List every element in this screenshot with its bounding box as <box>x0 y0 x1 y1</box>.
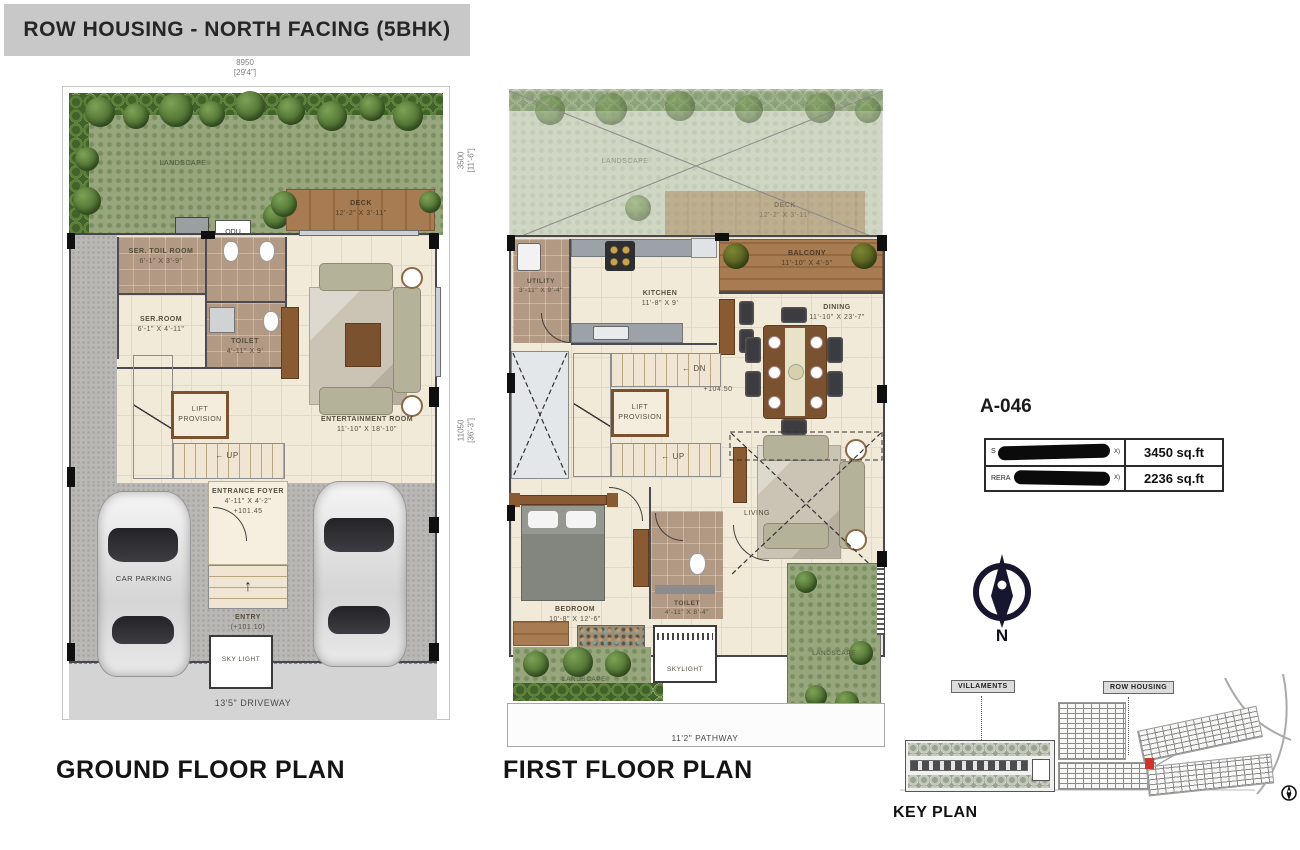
ff-up-label: ← UP <box>643 451 703 462</box>
ff-toilet-label: TOILET 4'-11" X 8'-4" <box>655 599 719 617</box>
pebble-strip <box>577 625 645 649</box>
leader-line <box>1128 697 1129 755</box>
unit-number-text: A-046 <box>980 396 1032 417</box>
car-icon <box>313 481 407 667</box>
gf-car-parking-label: CAR PARKING <box>104 574 184 585</box>
tv-unit <box>281 307 299 379</box>
wall <box>205 237 207 369</box>
room-label: BALCONY <box>757 249 857 259</box>
area-value: 2236 sq.ft <box>1144 471 1204 486</box>
arrow-left-icon: ← <box>215 451 226 460</box>
area-label-cell: S X) <box>986 440 1124 465</box>
room-dim: 4'-11" X 9' <box>209 347 281 357</box>
chair <box>781 307 807 323</box>
key-plan: VILLAMENTS ROW HOUSING <box>895 672 1295 808</box>
chair <box>739 301 754 325</box>
gf-foyer-label: ENTRANCE FOYER 4'-11" X 4'-2" +101.45 <box>210 487 286 516</box>
wall <box>117 293 205 295</box>
chair <box>745 337 761 363</box>
redaction-mark <box>998 444 1110 461</box>
washer-icon <box>517 243 541 271</box>
bed-mattress <box>521 505 605 601</box>
dining-table <box>763 325 827 419</box>
dimension-right-1: 3500 [11'-6"] <box>457 125 478 195</box>
coffee-table <box>345 323 381 367</box>
room-label: TOILET <box>655 599 719 608</box>
arrow-left-icon: ← <box>661 452 672 461</box>
ff-pathway-label: 11'2" PATHWAY <box>635 733 775 745</box>
up-label: UP <box>673 452 685 461</box>
bed-icon <box>519 495 607 505</box>
column <box>429 387 439 407</box>
room-dim: 11'-10" X 4'-5" <box>757 259 857 269</box>
pathway-label: 11'2" PATHWAY <box>672 733 739 743</box>
wall <box>719 291 883 294</box>
dresser <box>633 529 649 587</box>
redacted-label-prefix: RERA <box>991 475 1010 482</box>
room-label: LANDSCAPE <box>812 650 856 657</box>
leader-line <box>981 696 982 742</box>
dim-mm: 11050 <box>457 395 467 465</box>
plate-icon <box>810 336 823 349</box>
vanity-counter <box>655 585 715 594</box>
keyplan-label-text: VILLAMENTS <box>958 683 1008 690</box>
gf-entertainment-label: ENTERTAINMENT ROOM 11'-10" X 18'-10" <box>311 415 423 435</box>
tree-icon <box>359 95 385 121</box>
column <box>507 235 515 251</box>
ff-living-label: LIVING <box>731 509 783 519</box>
ff-plan-title: FIRST FLOOR PLAN <box>503 756 753 785</box>
room-label: ENTRANCE FOYER <box>210 487 286 497</box>
area-value-cell: 3450 sq.ft <box>1124 440 1222 465</box>
hob-icon <box>605 241 635 271</box>
keyplan-label-row-housing: ROW HOUSING <box>1103 681 1174 694</box>
arrow-up-icon: ↑ <box>244 578 252 596</box>
ff-deck-label: DECK 12'-2" X 3'-11" <box>735 201 835 221</box>
keyplan-highlight-unit <box>1145 758 1154 769</box>
wall <box>205 301 287 303</box>
side-table <box>401 395 423 417</box>
column <box>507 505 515 521</box>
tree-icon <box>563 647 593 677</box>
level-label: +101.45 <box>210 507 286 517</box>
keyplan-units-cluster <box>1058 702 1126 760</box>
void-cross-lines <box>511 351 569 479</box>
ff-landscape-right-label: LANDSCAPE <box>793 649 875 658</box>
gf-lift: LIFT PROVISION <box>171 391 229 439</box>
column <box>877 385 887 403</box>
car-windshield <box>324 518 394 552</box>
room-label: SER. TOIL ROOM <box>119 247 203 257</box>
plate-icon <box>768 366 781 379</box>
ff-utility-label: UTILITY 3'-11" X 9'-4" <box>509 277 573 295</box>
pillow-icon <box>566 511 596 528</box>
tree-icon <box>85 97 115 127</box>
tree-icon <box>123 103 149 129</box>
unit-number: A-046 <box>980 396 1032 418</box>
sink-icon <box>593 326 629 340</box>
tree-icon <box>277 97 305 125</box>
keyplan-clubhouse <box>1032 759 1050 781</box>
up-label: UP <box>227 451 239 460</box>
tree-icon <box>159 93 193 127</box>
keyplan-villaments-block <box>905 740 1055 792</box>
area-label-cell: RERA X) <box>986 467 1124 490</box>
plan-title-text: FIRST FLOOR PLAN <box>503 756 753 784</box>
redaction-mark <box>1014 470 1110 486</box>
toilet-wc-icon <box>689 553 706 575</box>
keyplan-title: KEY PLAN <box>893 804 978 822</box>
area-table: S X) 3450 sq.ft RERA X) 2236 sq.ft <box>984 438 1224 492</box>
north-label: N <box>988 626 1016 646</box>
column <box>877 235 887 251</box>
tree-icon <box>271 191 297 217</box>
plate-icon <box>768 336 781 349</box>
chair <box>827 371 843 397</box>
keyplan-compass-icon <box>1280 784 1298 802</box>
keyplan-label-text: ROW HOUSING <box>1110 684 1167 691</box>
gf-deck-label: DECK 12'-2" X 3'-11" <box>311 199 411 219</box>
title-bar: ROW HOUSING - NORTH FACING (5BHK) <box>4 4 470 56</box>
room-label: LANDSCAPE <box>160 160 207 167</box>
gf-entry-steps: ↑ <box>208 565 288 609</box>
car-icon: CAR PARKING <box>97 491 191 677</box>
ff-lift: LIFT PROVISION <box>611 389 669 437</box>
keyplan-trees <box>908 775 1050 788</box>
page-title: ROW HOUSING - NORTH FACING (5BHK) <box>23 18 450 42</box>
plate-icon <box>810 366 823 379</box>
ff-dn-label: ← DN <box>669 363 719 374</box>
ff-stair-flight <box>573 353 611 477</box>
gf-side-passage <box>71 235 117 483</box>
toilet-wc-icon <box>223 241 239 262</box>
ff-hedge-bottom <box>513 683 663 701</box>
keyplan-building-band <box>910 760 1028 771</box>
wall <box>117 237 119 359</box>
redacted-label-suffix: X) <box>1114 449 1120 455</box>
north-arrow-icon <box>962 552 1042 632</box>
gf-odu-box: ODU <box>215 220 251 234</box>
toilet-wc-icon <box>259 241 275 262</box>
dn-label: DN <box>693 364 706 373</box>
column <box>201 231 215 239</box>
room-dim: 12'-2" X 3'-11" <box>311 209 411 219</box>
gf-ser-room-label: SER.ROOM 6'-1" X 4'-11" <box>119 315 203 335</box>
redacted-label-prefix: S <box>991 448 996 455</box>
column <box>507 373 515 393</box>
gf-ser-toilet-label: SER. TOIL ROOM 6'-1" X 3'-9" <box>119 247 203 267</box>
car-parking-label: CAR PARKING <box>116 574 173 583</box>
tree-icon <box>75 147 99 171</box>
tree-icon <box>523 651 549 677</box>
dim-mm: 8950 <box>180 58 310 68</box>
gf-stair-flight <box>133 355 173 479</box>
skylight-grille <box>657 633 713 640</box>
tree-icon <box>199 101 225 127</box>
hatched-wall <box>877 563 884 635</box>
room-label: LIVING <box>744 510 770 517</box>
ff-balcony-label: BALCONY 11'-10" X 4'-5" <box>757 249 857 269</box>
room-label: ENTRY <box>208 613 288 623</box>
room-dim: 11'-10" X 18'-10" <box>311 425 423 435</box>
car-rear-window <box>328 606 390 634</box>
redacted-label-suffix: X) <box>1114 475 1120 481</box>
area-table-row: S X) 3450 sq.ft <box>986 440 1222 465</box>
car-windshield <box>108 528 178 562</box>
dimension-top: 8950 [29'4"] <box>180 58 310 79</box>
gf-landscape-label: LANDSCAPE <box>133 159 233 169</box>
gf-plan-title: GROUND FLOOR PLAN <box>56 756 345 785</box>
ff-kitchen-label: KITCHEN 11'-8" X 9' <box>615 289 705 309</box>
pillow-icon <box>528 511 558 528</box>
plant-icon <box>723 243 749 269</box>
shower-icon <box>209 307 235 333</box>
tree-icon <box>73 187 101 215</box>
column <box>429 643 439 661</box>
room-dim: 12'-2" X 3'-11" <box>735 211 835 221</box>
column <box>429 233 439 249</box>
room-dim: 4'-11" X 4'-2" <box>210 497 286 507</box>
dim-mm: 3500 <box>457 125 467 195</box>
column <box>429 517 439 533</box>
gf-skylight-label: SKY LIGHT <box>211 655 271 664</box>
driveway-label: 13'5" DRIVEWAY <box>215 698 291 708</box>
ff-landscape-bottom-label: LANDSCAPE <box>529 675 639 684</box>
window <box>299 230 419 236</box>
column <box>715 233 729 241</box>
room-dim: 4'-11" X 8'-4" <box>655 608 719 617</box>
ground-floor-plan: LANDSCAPE DECK 12'-2" X 3'-11" ODU SER. … <box>62 86 450 720</box>
dim-ft: [36'-3"] <box>467 395 477 465</box>
crockery-unit <box>719 299 735 355</box>
toilet-wc-icon <box>263 311 279 332</box>
gf-entry-label: ENTRY (+101.10) <box>208 613 288 633</box>
dim-ft: [11'-6"] <box>467 125 477 195</box>
area-table-row: RERA X) 2236 sq.ft <box>986 465 1222 490</box>
plan-title-text: GROUND FLOOR PLAN <box>56 756 345 784</box>
tree-icon <box>795 571 817 593</box>
column <box>877 551 887 567</box>
lift-label: LIFT PROVISION <box>614 403 666 423</box>
room-label: ENTERTAINMENT ROOM <box>311 415 423 425</box>
ff-skylight-label: SKYLIGHT <box>655 665 715 674</box>
area-value: 3450 sq.ft <box>1144 445 1204 460</box>
keyplan-label-villaments: VILLAMENTS <box>951 680 1015 693</box>
wall <box>571 343 717 345</box>
column <box>67 467 75 487</box>
plate-icon <box>810 396 823 409</box>
sofa <box>319 263 393 291</box>
tree-icon <box>419 191 441 213</box>
room-label: BEDROOM <box>527 605 623 615</box>
room-label: LANDSCAPE <box>562 676 606 683</box>
window <box>435 287 441 377</box>
room-label: UTILITY <box>509 277 573 286</box>
tree-icon <box>393 101 423 131</box>
sofa <box>319 387 393 415</box>
arrow-left-icon: ← <box>682 364 693 373</box>
skylight-label: SKYLIGHT <box>667 666 703 673</box>
tree-icon <box>235 91 265 121</box>
first-floor-plan: LANDSCAPE DECK 12'-2" X 3'-11" UTILITY 3… <box>505 85 890 748</box>
room-dim: 11'-8" X 9' <box>615 299 705 309</box>
chair <box>745 371 761 397</box>
ff-cabinet <box>691 238 717 258</box>
gf-driveway-label: 13'5" DRIVEWAY <box>183 697 323 710</box>
ff-wood-deck <box>513 621 569 646</box>
keyplan-trees <box>908 743 1050 756</box>
north-arrow: N <box>962 552 1042 648</box>
level-label: +104.50 <box>704 386 733 393</box>
room-dim: 6'-1" X 4'-11" <box>119 325 203 335</box>
room-label: TOILET <box>209 337 281 347</box>
room-label: KITCHEN <box>615 289 705 299</box>
room-dim: 6'-1" X 3'-9" <box>119 257 203 267</box>
skylight-label: SKY LIGHT <box>222 656 260 663</box>
gf-toilet-label: TOILET 4'-11" X 9' <box>209 337 281 357</box>
room-label: DECK <box>735 201 835 211</box>
plate-icon <box>768 396 781 409</box>
tree-icon <box>605 651 631 677</box>
sofa <box>393 287 421 393</box>
area-value-cell: 2236 sq.ft <box>1124 467 1222 490</box>
gf-up-label: ← UP <box>197 450 257 461</box>
chair <box>827 337 843 363</box>
north-letter: N <box>996 626 1008 645</box>
level-label: (+101.10) <box>208 623 288 633</box>
keyplan-units-cluster <box>1058 762 1156 790</box>
floorplan-sheet: ROW HOUSING - NORTH FACING (5BHK) 8950 [… <box>0 0 1300 850</box>
dim-ft: [29'4"] <box>180 68 310 78</box>
room-dim: 3'-11" X 9'-4" <box>509 286 573 295</box>
room-label: SER.ROOM <box>119 315 203 325</box>
ff-landscape-label: LANDSCAPE <box>575 157 675 167</box>
room-label: DECK <box>311 199 411 209</box>
bowl-icon <box>788 364 804 380</box>
tree-icon <box>317 101 347 131</box>
lift-label: LIFT PROVISION <box>175 405 225 425</box>
column <box>67 233 75 249</box>
room-label: LANDSCAPE <box>602 158 649 165</box>
dimension-right-2: 11050 [36'-3"] <box>457 395 478 465</box>
column <box>67 643 75 661</box>
side-table <box>401 267 423 289</box>
keyplan-title-text: KEY PLAN <box>893 804 978 821</box>
car-rear-window <box>112 616 174 644</box>
